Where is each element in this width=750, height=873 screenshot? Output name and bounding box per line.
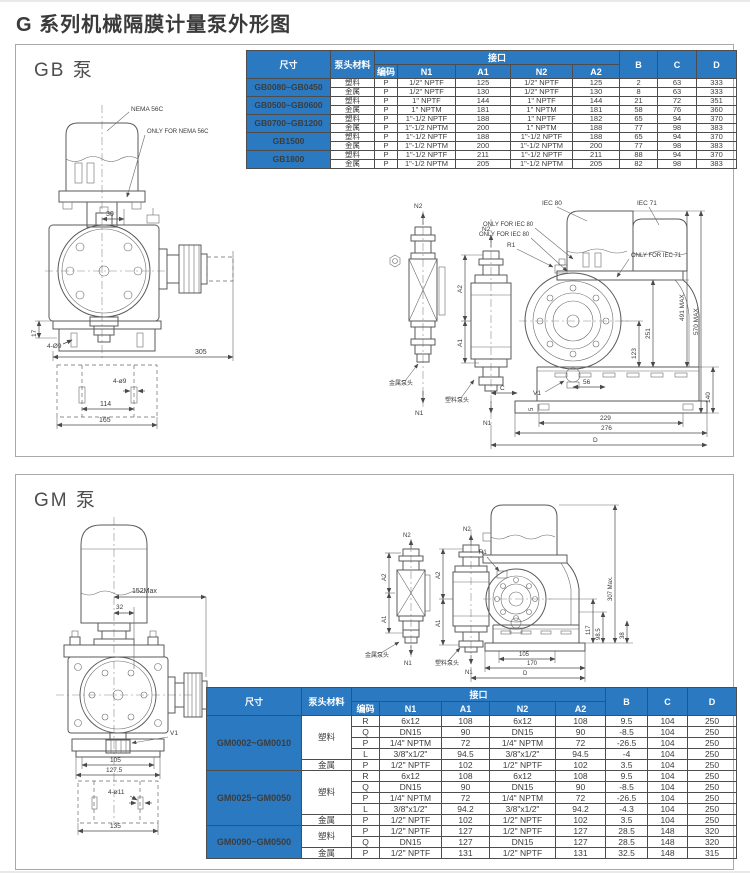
value-cell: DN15 — [490, 727, 556, 738]
a1-dim: A1 — [436, 619, 442, 627]
value-cell: 211 — [573, 151, 620, 160]
value-cell: 188 — [573, 124, 620, 133]
material-cell: 塑料 — [331, 133, 375, 142]
col-header-b: B — [620, 51, 658, 79]
table-row: GM0090~GM0500塑料P1/2" NPTF1271/2" NPTF127… — [207, 826, 737, 837]
c-dim: C — [500, 385, 505, 392]
value-cell: 94 — [658, 115, 697, 124]
value-cell: 130 — [573, 88, 620, 97]
value-cell: P — [352, 738, 380, 749]
col-header-c: C — [648, 688, 688, 716]
svg-text:123: 123 — [631, 348, 638, 359]
svg-text:17: 17 — [31, 329, 38, 337]
a1-dim: A1 — [457, 339, 464, 347]
material-cell: 金属 — [302, 815, 352, 826]
col-header-code: 编码 — [375, 65, 398, 79]
value-cell: 1"-1/2 NPTM — [398, 160, 456, 169]
col-header-n2: N2 — [511, 65, 573, 79]
value-cell: 383 — [697, 160, 737, 169]
gb-side-plastic-head-view: N2 A2 A1 塑料泵头 N1 C — [445, 219, 517, 427]
svg-text:98.5: 98.5 — [596, 628, 602, 640]
value-cell: 72 — [442, 793, 490, 804]
value-cell: L — [352, 749, 380, 760]
gm-front-drawing: 152Max 32 — [26, 509, 246, 857]
value-cell: 32.5 — [606, 848, 648, 859]
value-cell: 102 — [556, 760, 606, 771]
svg-text:170: 170 — [527, 661, 538, 667]
value-cell: 3.5 — [606, 760, 648, 771]
material-cell: 塑料 — [331, 79, 375, 88]
value-cell: 104 — [648, 760, 688, 771]
value-cell: DN15 — [380, 782, 442, 793]
value-cell: -8.5 — [606, 782, 648, 793]
svg-text:127.5: 127.5 — [106, 767, 123, 774]
material-cell: 金属 — [331, 160, 375, 169]
n1-label: N1 — [483, 420, 492, 427]
value-cell: 1/4" NPTM — [490, 738, 556, 749]
model-range-cell: GB0500~GB0600 — [247, 97, 331, 115]
value-cell: 148 — [648, 837, 688, 848]
value-cell: P — [375, 79, 398, 88]
value-cell: -26.5 — [606, 793, 648, 804]
value-cell: 370 — [697, 115, 737, 124]
table-row: GB1500塑料P1"-1/2 NPTF1881"-1/2 NPTF188659… — [247, 133, 737, 142]
value-cell: 1/2" NPTF — [398, 79, 456, 88]
value-cell: 104 — [648, 749, 688, 760]
svg-text:D: D — [593, 437, 598, 444]
value-cell: 1/2" NPTF — [380, 848, 442, 859]
value-cell: P — [375, 106, 398, 115]
material-cell: 塑料 — [331, 115, 375, 124]
value-cell: 77 — [620, 124, 658, 133]
value-cell: 104 — [648, 716, 688, 727]
value-cell: 148 — [648, 826, 688, 837]
n1-label: N1 — [404, 661, 412, 667]
value-cell: P — [375, 97, 398, 106]
value-cell: 1/2" NPTF — [490, 815, 556, 826]
value-cell: 94.2 — [556, 804, 606, 815]
value-cell: 104 — [648, 738, 688, 749]
v1-label: V1 — [170, 730, 178, 737]
value-cell: P — [375, 115, 398, 124]
value-cell: 1" NPTF — [511, 115, 573, 124]
value-cell: 1"-1/2 NPTM — [511, 160, 573, 169]
value-cell: 250 — [688, 716, 737, 727]
value-cell: 90 — [556, 782, 606, 793]
value-cell: 188 — [573, 133, 620, 142]
value-cell: 1/2" NPTF — [398, 88, 456, 97]
gb-front-dim-30: 30 — [102, 209, 124, 225]
col-header-interface: 接口 — [375, 51, 620, 65]
value-cell: 370 — [697, 151, 737, 160]
n1-label: N1 — [415, 410, 424, 417]
a2-dim: A2 — [382, 573, 388, 581]
value-cell: 90 — [442, 782, 490, 793]
value-cell: 1"-1/2 NPTM — [398, 124, 456, 133]
value-cell: 3/8"x1/2" — [380, 749, 442, 760]
value-cell: 320 — [688, 826, 737, 837]
gb-front-drawing: NEMA 56C ONLY FOR NEMA 56C 30 — [23, 99, 243, 449]
col-header-d: D — [697, 51, 737, 79]
gb-front-centerlines — [45, 105, 165, 361]
iec71-label: IEC 71 — [637, 200, 657, 207]
value-cell: 21 — [620, 97, 658, 106]
svg-text:117: 117 — [586, 625, 592, 635]
value-cell: 98 — [658, 160, 697, 169]
col-header-size: 尺寸 — [247, 51, 331, 79]
page-title: G 系列机械隔膜计量泵外形图 — [16, 8, 291, 37]
value-cell: 182 — [573, 115, 620, 124]
value-cell: 102 — [556, 815, 606, 826]
table-row: GB0700~GB1200塑料P1"-1/2 NPTF1881" NPTF182… — [247, 115, 737, 124]
value-cell: 108 — [442, 771, 490, 782]
svg-text:165: 165 — [99, 417, 111, 424]
value-cell: 360 — [697, 106, 737, 115]
svg-text:56: 56 — [583, 379, 591, 386]
material-cell: 塑料 — [302, 826, 352, 848]
value-cell: P — [352, 848, 380, 859]
value-cell: 1/2" NPTF — [380, 760, 442, 771]
gb-front-base — [53, 317, 161, 351]
gm-side-metal-head-view: N2 A2 A1 金属泵头 N1 — [365, 533, 430, 667]
a2-dim: A2 — [436, 571, 442, 579]
value-cell: 205 — [456, 160, 511, 169]
svg-text:307 Max.: 307 Max. — [608, 576, 614, 601]
material-cell: 金属 — [331, 106, 375, 115]
n2-label: N2 — [463, 527, 471, 533]
value-cell: 108 — [442, 716, 490, 727]
material-cell: 金属 — [302, 848, 352, 859]
material-cell: 塑料 — [302, 771, 352, 815]
value-cell: 58 — [620, 106, 658, 115]
value-cell: -8.5 — [606, 727, 648, 738]
value-cell: 8 — [620, 88, 658, 97]
value-cell: 98 — [658, 142, 697, 151]
gb-side-drawing: N2 金属泵头 N1 N2 — [387, 195, 735, 455]
value-cell: 1/2" NPTF — [511, 79, 573, 88]
value-cell: 1"-1/2 NPTM — [398, 142, 456, 151]
value-cell: 188 — [456, 133, 511, 142]
v1-label: V1 — [533, 390, 541, 397]
value-cell: DN15 — [490, 782, 556, 793]
value-cell: 205 — [573, 160, 620, 169]
gm-front-dims-top: 152Max 32 — [114, 588, 206, 677]
value-cell: 72 — [442, 738, 490, 749]
gb-front-stroke-knob — [159, 245, 233, 293]
value-cell: 98 — [658, 124, 697, 133]
value-cell: 144 — [456, 97, 511, 106]
value-cell: -26.5 — [606, 738, 648, 749]
value-cell: P — [375, 124, 398, 133]
value-cell: 102 — [442, 815, 490, 826]
value-cell: 131 — [556, 848, 606, 859]
gb-front-dims: 17 4-Ø9 305 — [31, 251, 233, 361]
value-cell: 3/8"x1/2" — [490, 804, 556, 815]
value-cell: 131 — [442, 848, 490, 859]
gb-side-gearbox — [519, 259, 629, 369]
value-cell: 94 — [658, 151, 697, 160]
gb-section: GB 泵 尺寸 泵头材料 接口 B C D 编码 N1 A1 N2 A2 GB0… — [15, 44, 734, 457]
value-cell: 130 — [456, 88, 511, 97]
value-cell: 127 — [442, 826, 490, 837]
only-nema-label: ONLY FOR NEMA 56C — [147, 129, 209, 135]
value-cell: 1/2" NPTF — [511, 88, 573, 97]
value-cell: 127 — [556, 837, 606, 848]
value-cell: P — [375, 88, 398, 97]
iec80-label: IEC 80 — [542, 200, 562, 207]
value-cell: R — [352, 771, 380, 782]
svg-text:38: 38 — [620, 632, 626, 639]
value-cell: 181 — [456, 106, 511, 115]
value-cell: P — [375, 142, 398, 151]
value-cell: 9.5 — [606, 716, 648, 727]
value-cell: 65 — [620, 133, 658, 142]
value-cell: 1" NPTM — [398, 106, 456, 115]
value-cell: 351 — [697, 97, 737, 106]
value-cell: 127 — [442, 837, 490, 848]
value-cell: 1/4" NPTM — [490, 793, 556, 804]
value-cell: 6x12 — [490, 771, 556, 782]
gb-section-label: GB 泵 — [34, 55, 94, 82]
gb-table-body: GB0080~GB0450塑料P1/2" NPTF1251/2" NPTF125… — [247, 79, 737, 169]
material-cell: 金属 — [331, 124, 375, 133]
svg-text:114: 114 — [100, 401, 111, 408]
col-header-c: C — [658, 51, 697, 79]
value-cell: 65 — [620, 115, 658, 124]
value-cell: 1" NPTM — [511, 106, 573, 115]
material-cell: 塑料 — [331, 97, 375, 106]
value-cell: Q — [352, 837, 380, 848]
value-cell: 72 — [556, 738, 606, 749]
model-range-cell: GB1500 — [247, 133, 331, 151]
value-cell: 77 — [620, 142, 658, 151]
table-row: GB0080~GB0450塑料P1/2" NPTF1251/2" NPTF125… — [247, 79, 737, 88]
value-cell: 9.5 — [606, 771, 648, 782]
value-cell: 94.5 — [442, 749, 490, 760]
value-cell: 148 — [648, 848, 688, 859]
value-cell: 108 — [556, 716, 606, 727]
value-cell: 104 — [648, 771, 688, 782]
n1-label: N1 — [465, 670, 473, 676]
col-header-n1: N1 — [398, 65, 456, 79]
value-cell: 108 — [556, 771, 606, 782]
gb-dimension-table: 尺寸 泵头材料 接口 B C D 编码 N1 A1 N2 A2 GB0080~G… — [246, 50, 737, 169]
svg-text:491 MAX.: 491 MAX. — [679, 292, 686, 321]
value-cell: 1"-1/2 NPTF — [398, 133, 456, 142]
value-cell: 90 — [556, 727, 606, 738]
value-cell: 1"-1/2 NPTF — [398, 115, 456, 124]
value-cell: P — [375, 160, 398, 169]
value-cell: 63 — [658, 79, 697, 88]
value-cell: P — [375, 151, 398, 160]
material-cell: 金属 — [331, 142, 375, 151]
table-row: GM0025~GM0050塑料R6x121086x121089.5104250 — [207, 771, 737, 782]
value-cell: 1/4" NPTM — [380, 793, 442, 804]
value-cell: 1" NPTM — [511, 124, 573, 133]
value-cell: 250 — [688, 804, 737, 815]
svg-text:105: 105 — [519, 652, 530, 658]
value-cell: 200 — [456, 142, 511, 151]
material-cell: 金属 — [331, 88, 375, 97]
value-cell: 383 — [697, 124, 737, 133]
value-cell: 1/4" NPTM — [380, 738, 442, 749]
r1-label: R1 — [507, 242, 516, 249]
gm-section: GM 泵 尺寸 泵头材料 接口 B C D 编码 N1 A1 N2 A2 GM0… — [15, 474, 734, 870]
svg-text:5: 5 — [529, 407, 535, 411]
value-cell: 200 — [456, 124, 511, 133]
value-cell: 94.5 — [556, 749, 606, 760]
value-cell: 125 — [456, 79, 511, 88]
value-cell: 63 — [658, 88, 697, 97]
nema-label: NEMA 56C — [131, 106, 163, 113]
svg-text:4-Ø9: 4-Ø9 — [47, 343, 62, 350]
gm-section-label: GM 泵 — [34, 485, 97, 512]
value-cell: 88 — [620, 151, 658, 160]
value-cell: R — [352, 716, 380, 727]
value-cell: 2 — [620, 79, 658, 88]
col-header-a2: A2 — [573, 65, 620, 79]
value-cell: 144 — [573, 97, 620, 106]
value-cell: 104 — [648, 782, 688, 793]
value-cell: 3/8"x1/2" — [490, 749, 556, 760]
value-cell: 1"-1/2 NPTF — [511, 133, 573, 142]
svg-text:30: 30 — [106, 211, 114, 218]
value-cell: 127 — [556, 826, 606, 837]
value-cell: 1" NPTF — [511, 97, 573, 106]
value-cell: 90 — [442, 727, 490, 738]
gm-side-drawing: N2 A2 A1 金属泵头 N1 N2 — [341, 497, 641, 707]
col-header-d: D — [688, 688, 737, 716]
value-cell: 383 — [697, 142, 737, 151]
svg-text:135: 135 — [110, 823, 121, 830]
plastic-head-label: 塑料泵头 — [445, 396, 469, 404]
value-cell: 1/2" NPTF — [490, 826, 556, 837]
a1-dim: A1 — [382, 615, 388, 623]
value-cell: 102 — [442, 760, 490, 771]
value-cell: 250 — [688, 771, 737, 782]
svg-text:4-ø9: 4-ø9 — [113, 378, 127, 385]
value-cell: 1"-1/2 NPTF — [511, 151, 573, 160]
value-cell: 1"-1/2 NPTM — [511, 142, 573, 151]
only-iec80-label-2: ONLY FOR IEC 80 — [479, 232, 530, 238]
gm-side-dims: 117 98.5 307 Max. 38 105 170 D — [471, 505, 633, 682]
value-cell: 250 — [688, 793, 737, 804]
metal-head-label: 金属泵头 — [365, 651, 389, 659]
svg-text:305: 305 — [195, 349, 207, 356]
value-cell: P — [375, 133, 398, 142]
a2-dim: A2 — [457, 285, 464, 293]
page-edge-top — [0, 0, 750, 2]
svg-text:276: 276 — [601, 425, 612, 432]
value-cell: 250 — [688, 727, 737, 738]
material-cell: 金属 — [302, 760, 352, 771]
value-cell: 1/2" NPTF — [490, 848, 556, 859]
value-cell: 125 — [573, 79, 620, 88]
n2-label: N2 — [403, 533, 411, 539]
value-cell: 370 — [697, 133, 737, 142]
value-cell: 28.5 — [606, 837, 648, 848]
value-cell: L — [352, 804, 380, 815]
svg-text:4-ø11: 4-ø11 — [108, 789, 125, 796]
value-cell: 250 — [688, 738, 737, 749]
value-cell: DN15 — [380, 837, 442, 848]
value-cell: 320 — [688, 837, 737, 848]
value-cell: 3/8"x1/2" — [380, 804, 442, 815]
col-header-a1: A1 — [456, 65, 511, 79]
value-cell: 1"-1/2 NPTF — [398, 151, 456, 160]
value-cell: Q — [352, 727, 380, 738]
value-cell: 94 — [658, 133, 697, 142]
gm-front-dims-bottom: 105 127.5 4-ø11 135 — [76, 757, 160, 835]
value-cell: P — [352, 826, 380, 837]
value-cell: 104 — [648, 804, 688, 815]
gm-table-body: GM0002~GM0010塑料R6x121086x121089.5104250Q… — [207, 716, 737, 859]
value-cell: 3.5 — [606, 815, 648, 826]
value-cell: 250 — [688, 782, 737, 793]
gb-side-metal-head-view: N2 金属泵头 N1 — [389, 203, 445, 417]
n2-label: N2 — [414, 203, 423, 210]
value-cell: 104 — [648, 793, 688, 804]
value-cell: 181 — [573, 106, 620, 115]
value-cell: DN15 — [380, 727, 442, 738]
value-cell: 250 — [688, 815, 737, 826]
table-row: GM0002~GM0010塑料R6x121086x121089.5104250 — [207, 716, 737, 727]
value-cell: 1/2" NPTF — [490, 760, 556, 771]
value-cell: P — [352, 760, 380, 771]
table-row: GB1800塑料P1"-1/2 NPTF2111"-1/2 NPTF211889… — [247, 151, 737, 160]
svg-text:140: 140 — [705, 392, 712, 403]
value-cell: 333 — [697, 88, 737, 97]
value-cell: 315 — [688, 848, 737, 859]
value-cell: Q — [352, 782, 380, 793]
svg-text:229: 229 — [600, 415, 611, 422]
only-iec80-label-1: ONLY FOR IEC 80 — [483, 222, 534, 228]
value-cell: 333 — [697, 79, 737, 88]
svg-text:D: D — [523, 671, 528, 677]
value-cell: DN15 — [490, 837, 556, 848]
gb-front-pump-head — [49, 207, 159, 321]
only-iec71-label: ONLY FOR IEC 71 — [631, 253, 682, 259]
value-cell: 211 — [456, 151, 511, 160]
gm-dimension-table: 尺寸 泵头材料 接口 B C D 编码 N1 A1 N2 A2 GM0002~G… — [206, 687, 737, 859]
value-cell: 6x12 — [380, 716, 442, 727]
r1-label: R1 — [479, 550, 487, 556]
gb-table-header: 尺寸 泵头材料 接口 B C D 编码 N1 A1 N2 A2 — [247, 51, 737, 79]
value-cell: P — [352, 793, 380, 804]
svg-text:251: 251 — [645, 328, 652, 339]
value-cell: -4 — [606, 749, 648, 760]
value-cell: -4.3 — [606, 804, 648, 815]
value-cell: 6x12 — [490, 716, 556, 727]
value-cell: 200 — [573, 142, 620, 151]
model-range-cell: GB1800 — [247, 151, 331, 169]
gb-front-footprint: 4-ø9 114 165 — [57, 365, 157, 429]
value-cell: 1/2" NPTF — [380, 826, 442, 837]
gm-front-centerlines — [56, 517, 194, 825]
value-cell: 72 — [658, 97, 697, 106]
value-cell: 72 — [556, 793, 606, 804]
metal-head-label: 金属泵头 — [389, 379, 413, 387]
svg-text:152Max: 152Max — [132, 588, 157, 595]
table-row: GB0500~GB0600塑料P1" NPTF1441" NPTF1442172… — [247, 97, 737, 106]
material-cell: 塑料 — [302, 716, 352, 760]
svg-text:105: 105 — [110, 757, 121, 764]
col-header-material: 泵头材料 — [331, 51, 375, 79]
value-cell: 82 — [620, 160, 658, 169]
model-range-cell: GB0080~GB0450 — [247, 79, 331, 97]
value-cell: 94.2 — [442, 804, 490, 815]
value-cell: 104 — [648, 727, 688, 738]
